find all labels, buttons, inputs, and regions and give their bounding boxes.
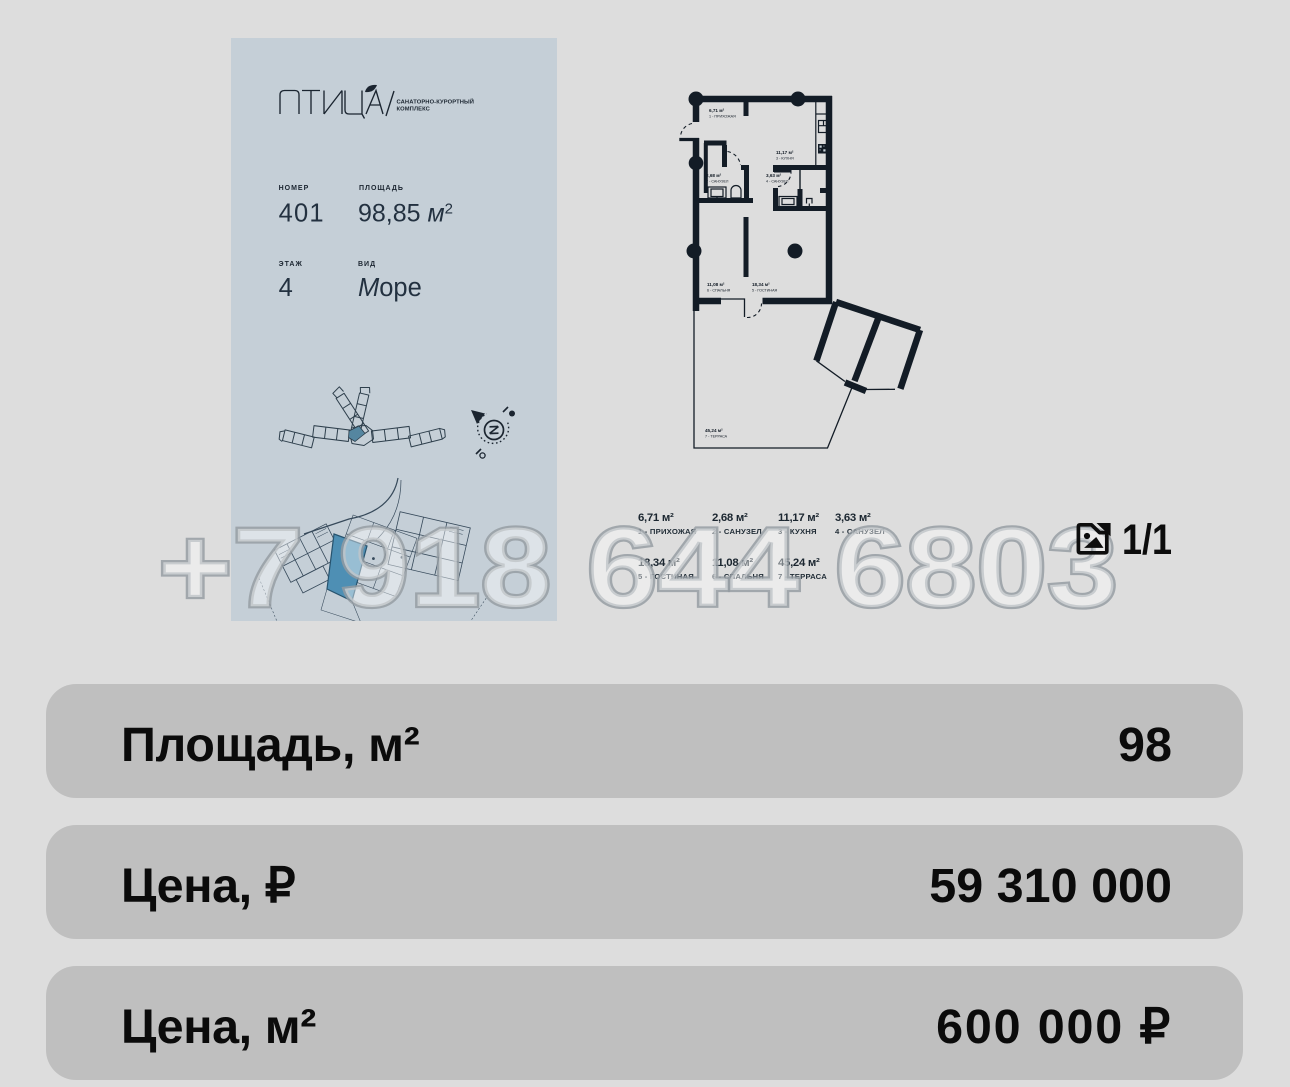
svg-text:1/1: 1/1 [1122,516,1172,564]
svg-text:+7 918 644 6803: +7 918 644 6803 [158,505,1118,630]
